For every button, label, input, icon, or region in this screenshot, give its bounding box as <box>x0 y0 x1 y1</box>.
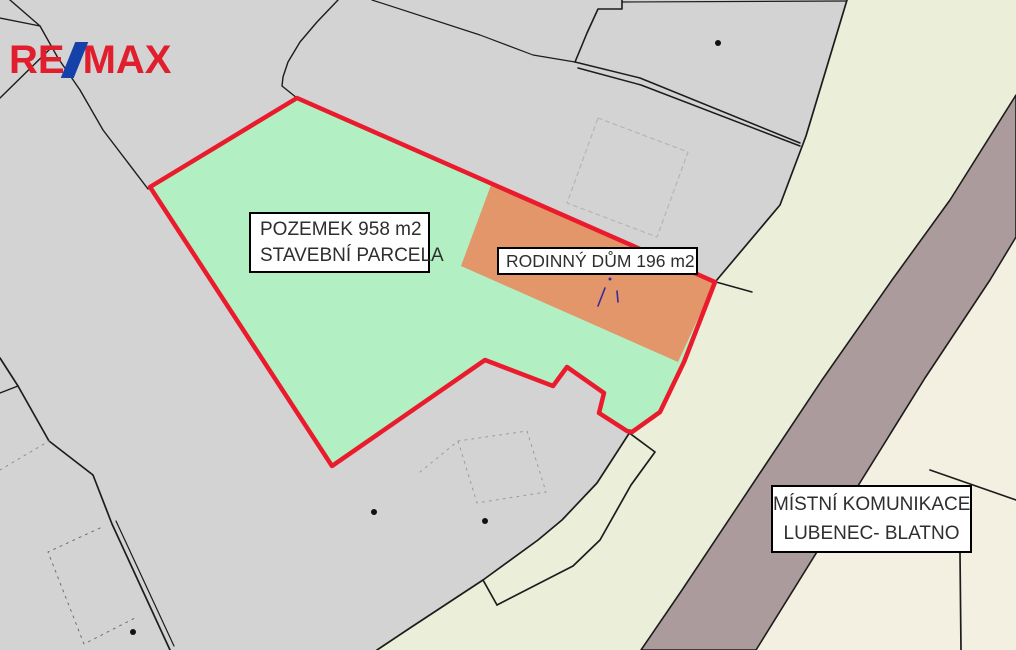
remax-logo: RE MAX <box>9 40 171 80</box>
parcel-label-line1: POZEMEK 958 m2 <box>260 217 428 243</box>
road-label-line1: MÍSTNÍ KOMUNIKACE <box>773 490 970 519</box>
remax-logo-max: MAX <box>83 40 172 80</box>
building-dot-mid <box>482 518 488 524</box>
house-label-line1: RODINNÝ DŮM 196 m2 <box>506 250 696 272</box>
building-dot-left <box>371 509 377 515</box>
building-dot-bottomleft <box>130 629 136 635</box>
remax-logo-re: RE <box>9 40 65 80</box>
building-use-mark-dot <box>609 278 612 281</box>
building-dot-top <box>715 40 721 46</box>
building-use-mark-stroke <box>617 291 618 302</box>
cadastral-map-screenshot: RE MAX POZEMEK 958 m2 STAVEBNÍ PARCELA R… <box>0 0 1016 650</box>
road-label: MÍSTNÍ KOMUNIKACE LUBENEC- BLATNO <box>771 485 972 553</box>
parcel-label-line2: STAVEBNÍ PARCELA <box>260 243 428 269</box>
road-label-line2: LUBENEC- BLATNO <box>773 519 970 548</box>
house-label: RODINNÝ DŮM 196 m2 <box>497 247 698 275</box>
parcel-label: POZEMEK 958 m2 STAVEBNÍ PARCELA <box>249 212 430 273</box>
